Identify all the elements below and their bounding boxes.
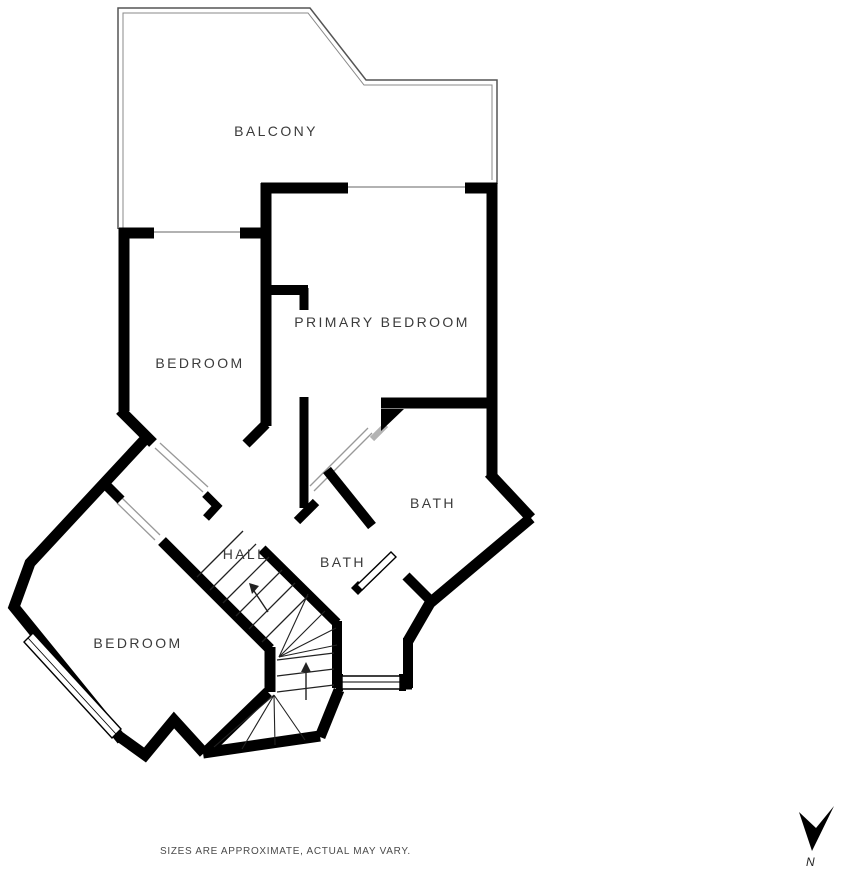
floor-plan-drawing <box>0 0 848 872</box>
room-label-hall: HALL <box>223 546 268 562</box>
room-label-bedroom-upper: BEDROOM <box>155 355 244 371</box>
room-label-bath-right: BATH <box>410 495 456 511</box>
room-label-bedroom-lower: BEDROOM <box>93 635 182 651</box>
disclaimer-text: SIZES ARE APPROXIMATE, ACTUAL MAY VARY. <box>160 846 411 857</box>
north-label: N <box>806 855 815 869</box>
room-label-primary-bedroom: PRIMARY BEDROOM <box>294 314 470 330</box>
room-label-bath-left: BATH <box>320 554 366 570</box>
room-label-balcony: BALCONY <box>234 123 318 139</box>
floor-plan-page: BALCONY BEDROOM PRIMARY BEDROOM BATH BAT… <box>0 0 848 872</box>
